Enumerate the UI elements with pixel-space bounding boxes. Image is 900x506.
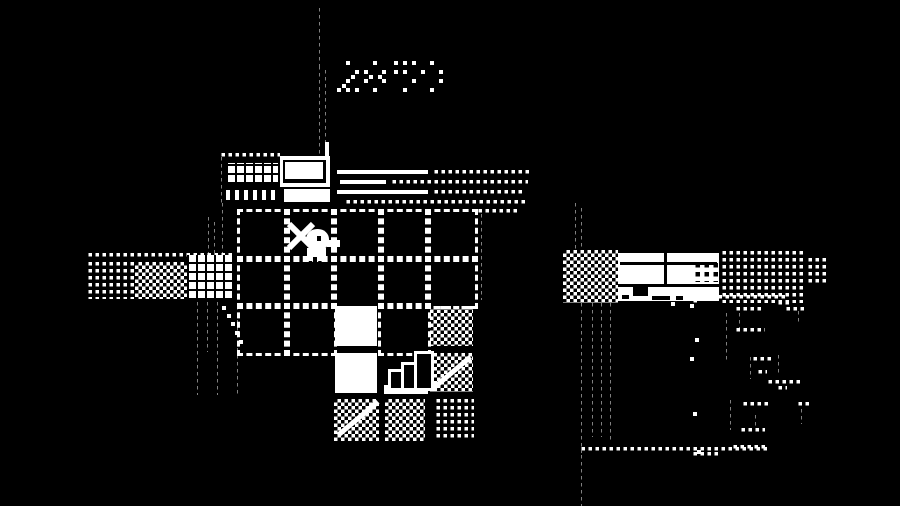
- shore-dots-bottom-2: [690, 452, 720, 456]
- awning-line-2: [340, 180, 386, 184]
- forest-fragment: [733, 307, 763, 311]
- scatter-dot: [231, 322, 235, 326]
- meadow-dot-field: [85, 262, 135, 299]
- awning-line-1: [337, 170, 428, 174]
- awning-line-4-dots: [343, 200, 528, 204]
- checker-tile-4: [385, 399, 425, 441]
- scatter-dot: [227, 314, 231, 318]
- awning-line-1-dots: [431, 170, 531, 174]
- roof-edge-dots-top: [218, 153, 280, 157]
- floor-tile: [425, 209, 478, 262]
- building-base-notch-2: [652, 296, 670, 300]
- stray-dot: [690, 304, 694, 308]
- checker-tile-1: [430, 306, 473, 346]
- scatter-dot: [239, 340, 243, 344]
- forest-fragment: [750, 357, 772, 361]
- roof-edge-dots-left: [218, 157, 222, 203]
- fence-dots-2: [204, 302, 208, 352]
- river-dots-upper-1: [572, 203, 576, 252]
- fence-dots-upper-1: [205, 217, 209, 257]
- grid-right-dotted-edge: [478, 214, 482, 300]
- forest-fragment: [795, 311, 799, 325]
- forest-fragment: [740, 402, 768, 406]
- floor-tile: [237, 256, 290, 309]
- white-tile-1: [335, 306, 377, 346]
- river-dots-4: [607, 303, 611, 441]
- chart-bar-3: [414, 351, 434, 391]
- forest-fragment: [765, 380, 803, 384]
- scatter-dot: [235, 331, 239, 335]
- building-base-notch-3: [676, 296, 683, 300]
- forest-fragment: [733, 328, 765, 332]
- stray-dot: [690, 357, 694, 361]
- river-dots-5: [578, 455, 582, 506]
- forest-fragment: [730, 445, 766, 449]
- river-dots-3: [598, 303, 602, 437]
- floor-tile: [378, 209, 431, 262]
- smoke-dots-mid-left: [316, 66, 320, 154]
- player-leg-gap: [313, 257, 317, 262]
- stray-dot: [693, 412, 697, 416]
- fence-dots-upper-2: [211, 222, 215, 256]
- building-base-notch-1: [622, 295, 629, 299]
- roof-hatch-block: [226, 163, 278, 184]
- shore-checker: [563, 250, 618, 303]
- forest-fragment: [775, 301, 791, 305]
- building-wall-divider: [664, 253, 667, 284]
- forest-fragment: [723, 313, 727, 333]
- meadow-hatch-block: [187, 255, 232, 300]
- forest-fragment: [736, 313, 740, 329]
- player-eye: [317, 236, 321, 241]
- forest-fragment: [775, 355, 779, 373]
- river-dots-2: [589, 303, 593, 437]
- awning-line-3-dots: [431, 190, 525, 194]
- forest-fragment: [755, 370, 767, 374]
- floor-tile: [331, 209, 384, 262]
- forest-fragment: [727, 400, 731, 430]
- smoke-dots-top: [316, 8, 320, 66]
- fence-dots-1: [194, 302, 198, 395]
- building-porch: [284, 189, 330, 202]
- stray-dot: [671, 302, 675, 306]
- forest-fragment: [708, 295, 788, 299]
- floor-tile: [237, 303, 290, 356]
- game-stage[interactable]: [0, 0, 900, 506]
- floor-tile: [284, 256, 337, 309]
- forest-fragment: [775, 386, 787, 390]
- stray-dot: [697, 450, 701, 454]
- building-door: [633, 287, 648, 296]
- floor-tile: [378, 303, 431, 356]
- floor-tile: [331, 256, 384, 309]
- awning-line-2-dots: [389, 180, 528, 184]
- forest-fragment: [752, 415, 756, 430]
- fence-dots-3: [214, 302, 218, 395]
- river-dots-upper-2: [578, 208, 582, 252]
- forest-fragment: [795, 402, 810, 406]
- building-door-panel: [285, 162, 323, 179]
- meadow-checker-field: [135, 262, 187, 299]
- awning-line-3: [337, 190, 428, 194]
- roof-fringe-comb: [226, 190, 278, 200]
- path-dots-grid-topright: [475, 209, 517, 213]
- scatter-dot: [222, 306, 226, 310]
- forest-fragment: [723, 335, 727, 360]
- forest-dots-b: [805, 258, 829, 286]
- floor-tile: [237, 209, 290, 262]
- floor-tile: [284, 303, 337, 356]
- river-dots-1: [578, 303, 582, 453]
- grid-left-dotted-edge: [234, 306, 238, 396]
- building-windows: [691, 263, 718, 282]
- floor-tile: [425, 256, 478, 309]
- fence-dots-upper-3: [219, 203, 223, 255]
- dot-tile: [433, 399, 474, 441]
- white-tile-2: [335, 353, 377, 393]
- floor-tile: [378, 256, 431, 309]
- stray-dot: [695, 338, 699, 342]
- forest-fragment: [783, 307, 805, 311]
- player-beak: [327, 240, 340, 247]
- forest-fragment: [690, 299, 700, 303]
